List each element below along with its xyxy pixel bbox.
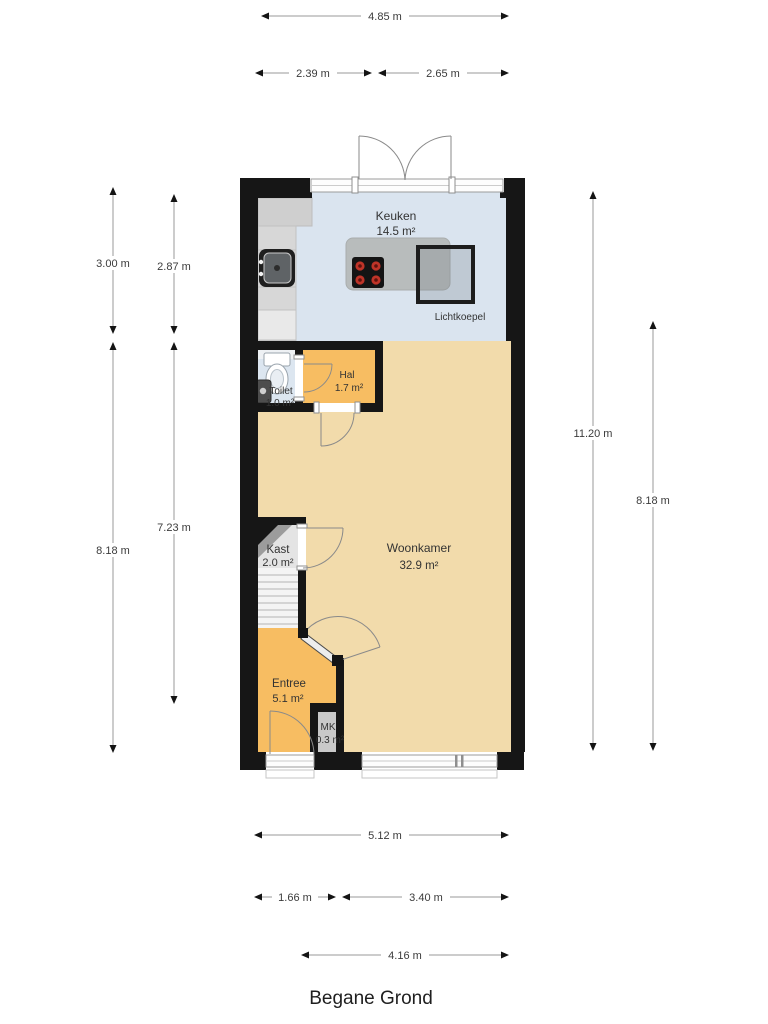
svg-text:8.18 m: 8.18 m (96, 545, 130, 557)
door-post (449, 177, 455, 193)
upper-cabinet (258, 198, 312, 226)
kast-door-opening (298, 526, 306, 568)
svg-text:1.0 m²: 1.0 m² (266, 398, 295, 409)
svg-text:1.66 m: 1.66 m (278, 892, 312, 904)
svg-text:4.16 m: 4.16 m (388, 950, 422, 962)
sink-icon (259, 249, 295, 287)
dim-top-right-segment: 2.65 m (379, 66, 508, 80)
dim-bottom-offset: 4.16 m (302, 948, 508, 962)
svg-text:3.40 m: 3.40 m (409, 892, 443, 904)
dim-right-lower: 8.18 m (629, 322, 677, 750)
counter-appliance (258, 310, 296, 340)
svg-text:3.00 m: 3.00 m (96, 258, 130, 270)
svg-text:Toilet: Toilet (269, 386, 293, 397)
toilet-door-opening (295, 357, 303, 399)
svg-text:1.7 m²: 1.7 m² (335, 383, 364, 394)
svg-text:MK: MK (321, 722, 336, 733)
kast-label: Kast 2.0 m² (262, 544, 294, 569)
svg-text:4.85 m: 4.85 m (368, 11, 402, 23)
svg-text:5.12 m: 5.12 m (368, 830, 402, 842)
wall-halblock-top (240, 341, 383, 350)
wall-mk-top (310, 703, 344, 712)
dim-bottom-total: 5.12 m (255, 828, 508, 842)
dim-bottom-left-segment: 1.66 m (255, 890, 335, 904)
svg-text:5.1 m²: 5.1 m² (272, 693, 304, 705)
dim-bottom-right-segment: 3.40 m (343, 890, 508, 904)
svg-text:32.9 m²: 32.9 m² (400, 560, 439, 572)
dim-left-outer-bottom: 8.18 m (89, 343, 137, 752)
sill (266, 770, 314, 778)
wall-right-kitchen (506, 178, 525, 341)
svg-text:Hal: Hal (339, 370, 354, 381)
cooktop-icon (352, 257, 384, 288)
svg-text:2.87 m: 2.87 m (157, 261, 191, 273)
svg-text:Keuken: Keuken (376, 209, 417, 223)
svg-text:2.0 m²: 2.0 m² (262, 557, 294, 569)
svg-text:14.5 m²: 14.5 m² (377, 226, 416, 238)
wall-halblock-bottom (240, 403, 383, 412)
plan-title: Begane Grond (309, 988, 433, 1009)
wall-mk-left (310, 712, 318, 752)
toilet-label: Toilet 1.0 m² (266, 386, 295, 409)
svg-text:2.39 m: 2.39 m (296, 68, 330, 80)
svg-text:11.20 m: 11.20 m (574, 428, 613, 440)
dim-top-left-segment: 2.39 m (256, 66, 371, 80)
dim-left-inner-top: 2.87 m (150, 195, 198, 333)
french-doors (359, 136, 451, 180)
svg-text:2.65 m: 2.65 m (426, 68, 460, 80)
door-post (352, 177, 358, 193)
floor-plan-canvas: Keuken 14.5 m² Lichtkoepel Toilet 1.0 m²… (0, 0, 768, 1024)
dim-right-full: 11.20 m (565, 192, 621, 750)
svg-text:0.3 m²: 0.3 m² (316, 735, 345, 746)
wall-top-left (240, 178, 312, 198)
dim-top-total: 4.85 m (262, 9, 508, 23)
lichtkoepel-label: Lichtkoepel (435, 312, 486, 323)
wall-hal-right (375, 341, 383, 412)
svg-text:Woonkamer: Woonkamer (387, 541, 451, 555)
hal-door-opening (316, 403, 358, 412)
svg-text:Entree: Entree (272, 678, 306, 690)
sill (362, 770, 497, 778)
dim-left-inner-bottom: 7.23 m (150, 343, 198, 703)
svg-text:Kast: Kast (266, 544, 290, 556)
floor-plan-page: Keuken 14.5 m² Lichtkoepel Toilet 1.0 m²… (0, 0, 768, 1024)
skylight-outline (418, 247, 473, 302)
dim-left-outer-top: 3.00 m (89, 188, 137, 333)
wall-right-living (511, 338, 525, 752)
wall-left (240, 178, 258, 770)
svg-text:8.18 m: 8.18 m (636, 495, 670, 507)
svg-text:7.23 m: 7.23 m (157, 522, 191, 534)
